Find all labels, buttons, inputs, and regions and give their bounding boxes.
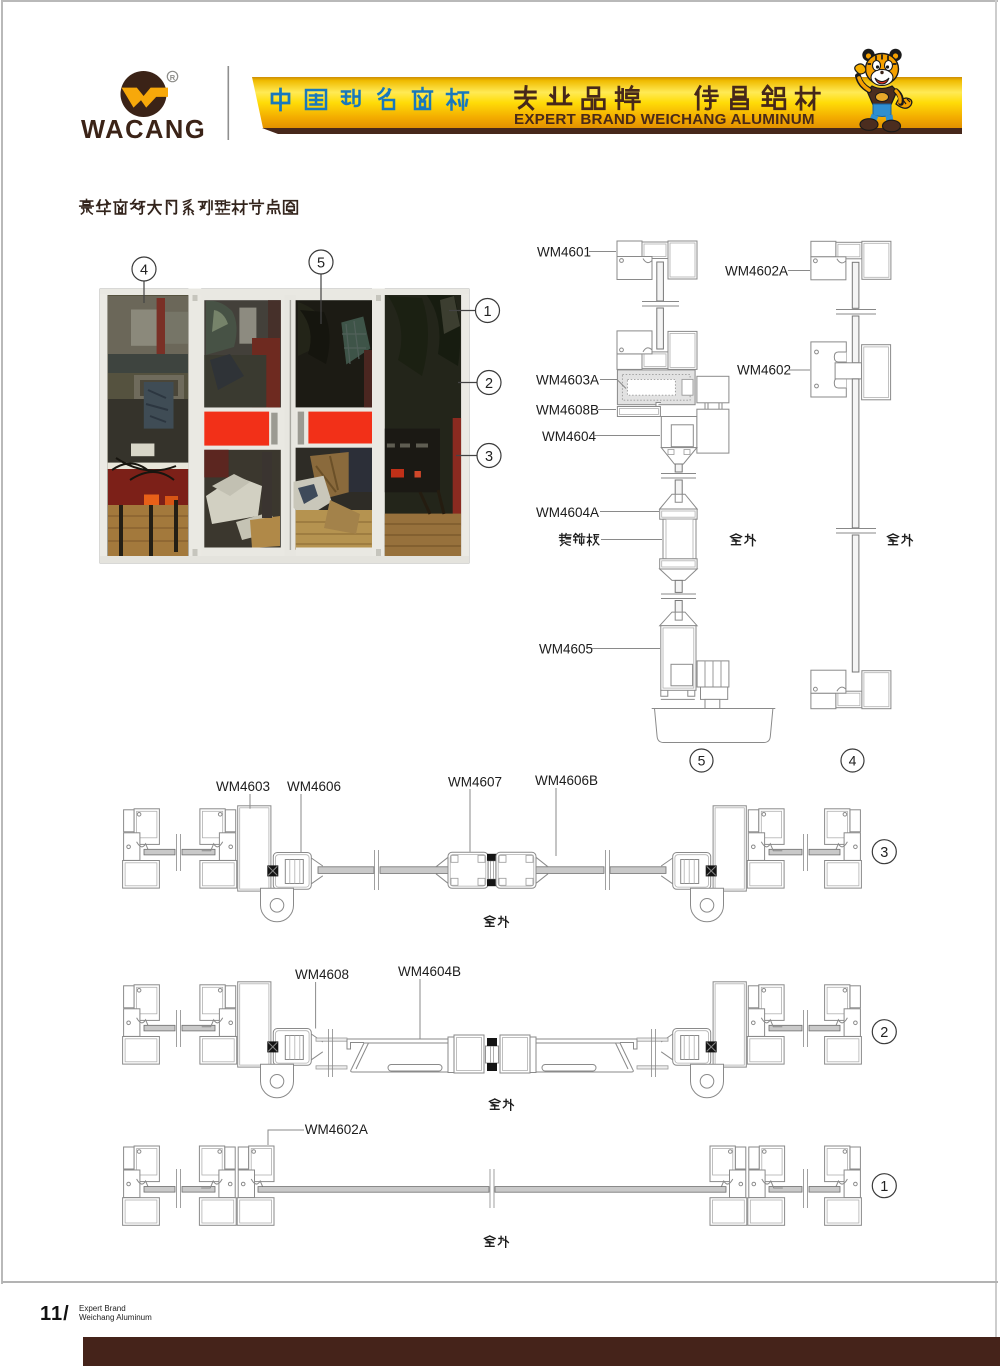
svg-text:1: 1 — [880, 1179, 888, 1195]
svg-text:WM4608B: WM4608B — [536, 403, 599, 418]
svg-text:4: 4 — [140, 263, 148, 279]
svg-text:EXPERT BRAND WEICHANG ALUMINUM: EXPERT BRAND WEICHANG ALUMINUM — [514, 111, 815, 128]
svg-text:WACANG: WACANG — [81, 116, 206, 144]
svg-text:WM4603: WM4603 — [216, 779, 270, 794]
svg-text:WM4602A: WM4602A — [305, 1122, 368, 1137]
svg-text:WM4602A: WM4602A — [725, 264, 788, 279]
svg-text:2: 2 — [485, 376, 493, 392]
svg-text:WM4603A: WM4603A — [536, 373, 599, 388]
svg-text:5: 5 — [698, 753, 706, 769]
svg-text:WM4605: WM4605 — [539, 642, 593, 657]
svg-text:2: 2 — [880, 1025, 888, 1041]
svg-text:WM4604A: WM4604A — [536, 505, 599, 520]
svg-text:4: 4 — [849, 753, 857, 769]
svg-text:WM4606: WM4606 — [287, 779, 341, 794]
svg-text:WM4604B: WM4604B — [398, 964, 461, 979]
svg-text:3: 3 — [485, 449, 493, 465]
svg-text:1: 1 — [483, 304, 491, 320]
svg-text:WM4604: WM4604 — [542, 429, 597, 444]
svg-text:WM4607: WM4607 — [448, 775, 502, 790]
svg-text:WM4602: WM4602 — [737, 363, 791, 378]
svg-text:R: R — [170, 73, 176, 82]
svg-text:3: 3 — [880, 845, 888, 861]
svg-text:5: 5 — [317, 256, 325, 272]
svg-text:WM4606B: WM4606B — [535, 773, 598, 788]
svg-text:WM4608: WM4608 — [295, 967, 349, 982]
svg-text:WM4601: WM4601 — [537, 244, 591, 259]
